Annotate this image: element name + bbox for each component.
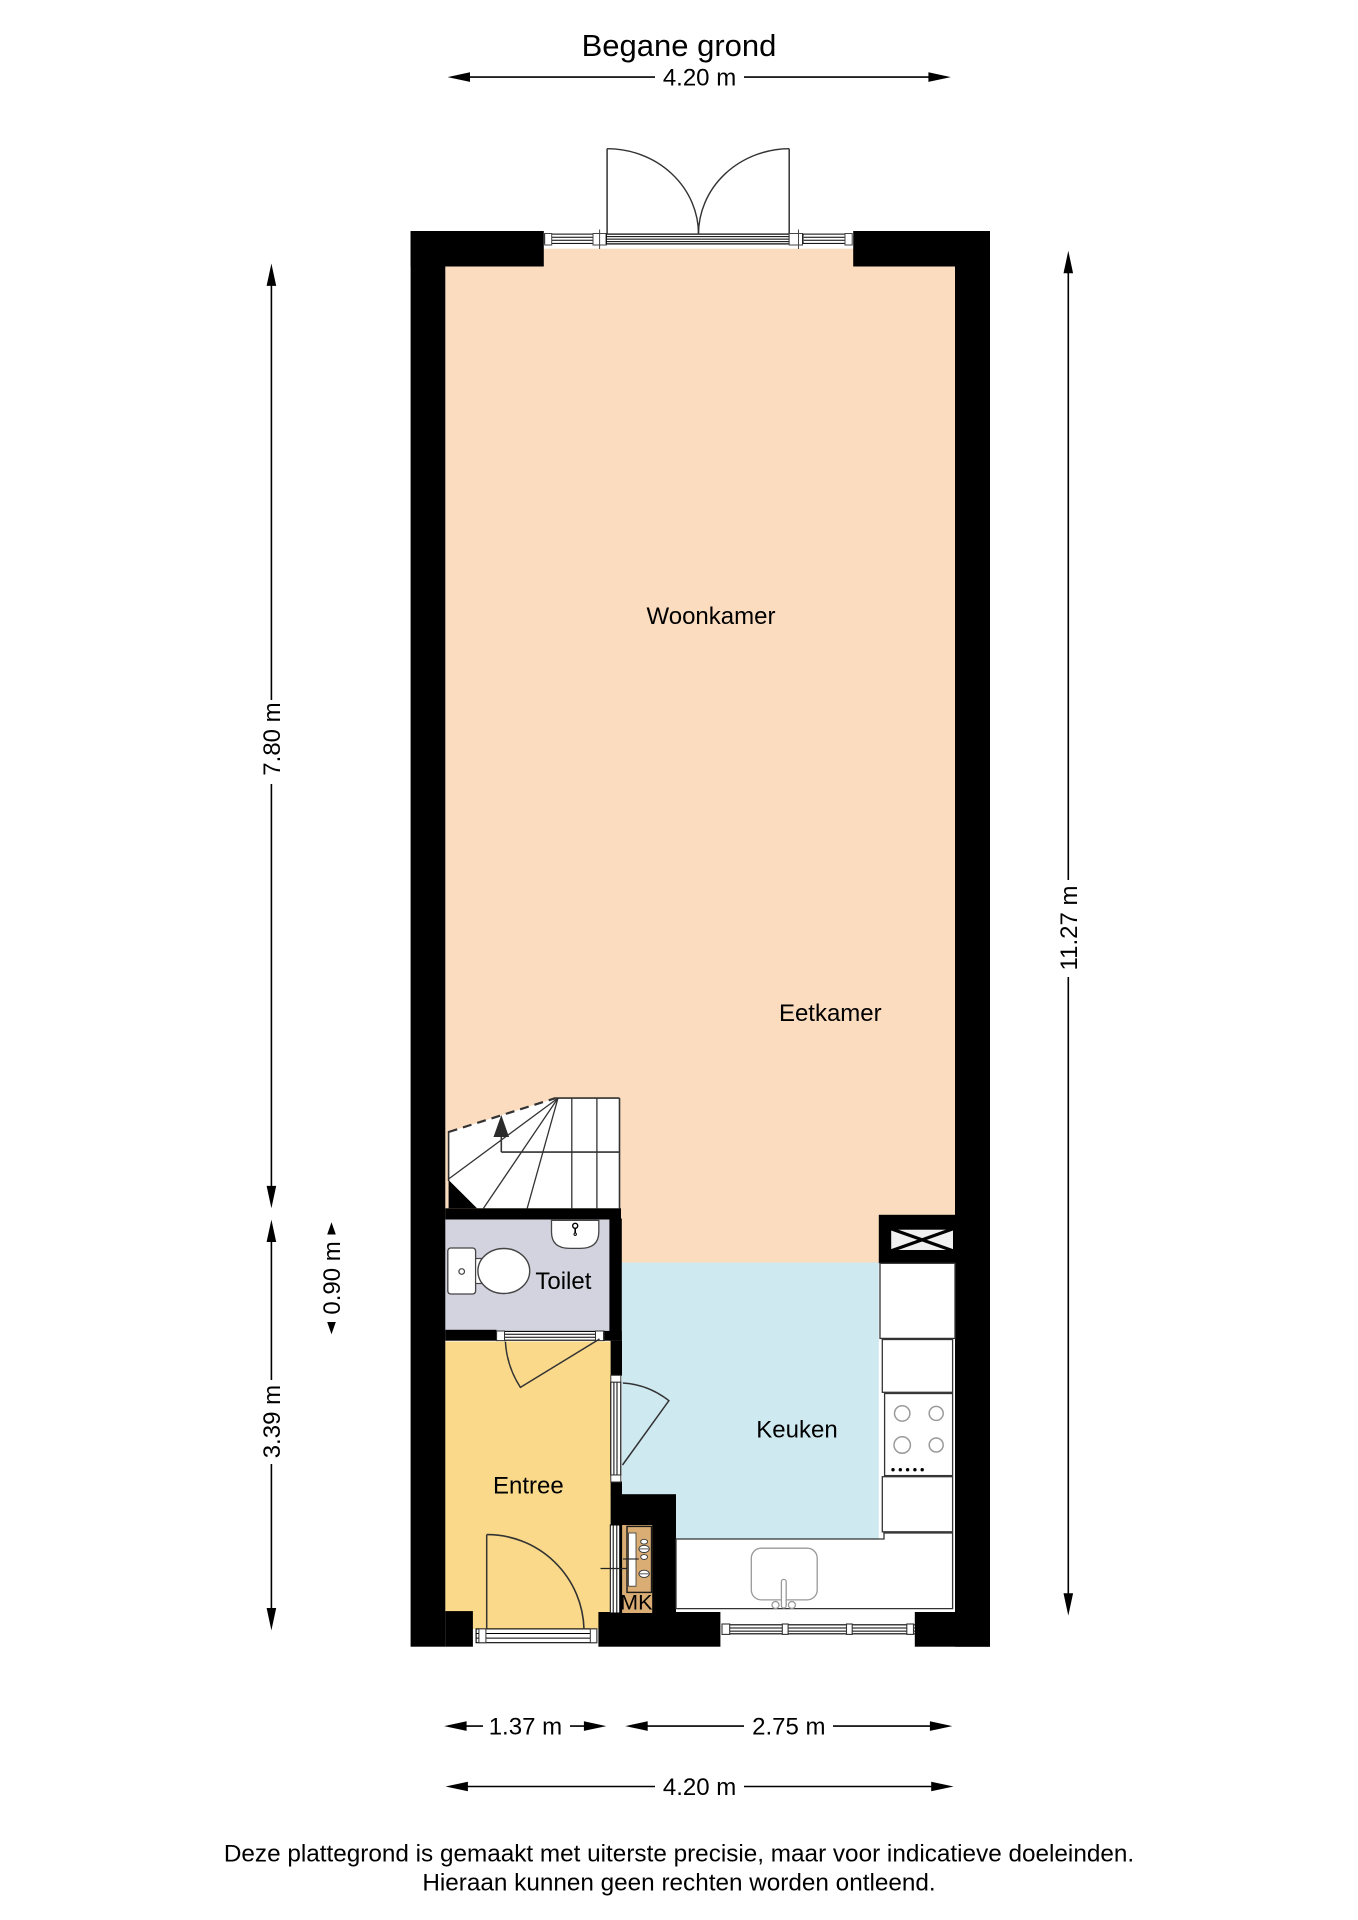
svg-text:Keuken: Keuken <box>756 1417 837 1444</box>
svg-text:MK: MK <box>620 1591 653 1615</box>
svg-text:3.39 m: 3.39 m <box>259 1385 286 1458</box>
svg-text:4.20 m: 4.20 m <box>663 65 736 92</box>
svg-text:7.80 m: 7.80 m <box>259 702 286 775</box>
svg-text:11.27 m: 11.27 m <box>1056 886 1083 971</box>
svg-text:Begane grond: Begane grond <box>582 28 777 63</box>
svg-text:1.37 m: 1.37 m <box>489 1714 562 1741</box>
svg-text:Toilet: Toilet <box>535 1268 591 1295</box>
svg-text:Hieraan kunnen geen rechten wo: Hieraan kunnen geen rechten worden ontle… <box>422 1870 935 1897</box>
svg-text:0.90 m: 0.90 m <box>319 1241 346 1314</box>
svg-text:Woonkamer: Woonkamer <box>647 603 776 630</box>
svg-text:4.20 m: 4.20 m <box>663 1774 736 1801</box>
svg-text:Deze plattegrond is gemaakt me: Deze plattegrond is gemaakt met uiterste… <box>224 1841 1134 1868</box>
svg-text:2.75 m: 2.75 m <box>752 1714 825 1741</box>
svg-text:Entree: Entree <box>493 1473 564 1500</box>
svg-text:Eetkamer: Eetkamer <box>779 1000 882 1027</box>
